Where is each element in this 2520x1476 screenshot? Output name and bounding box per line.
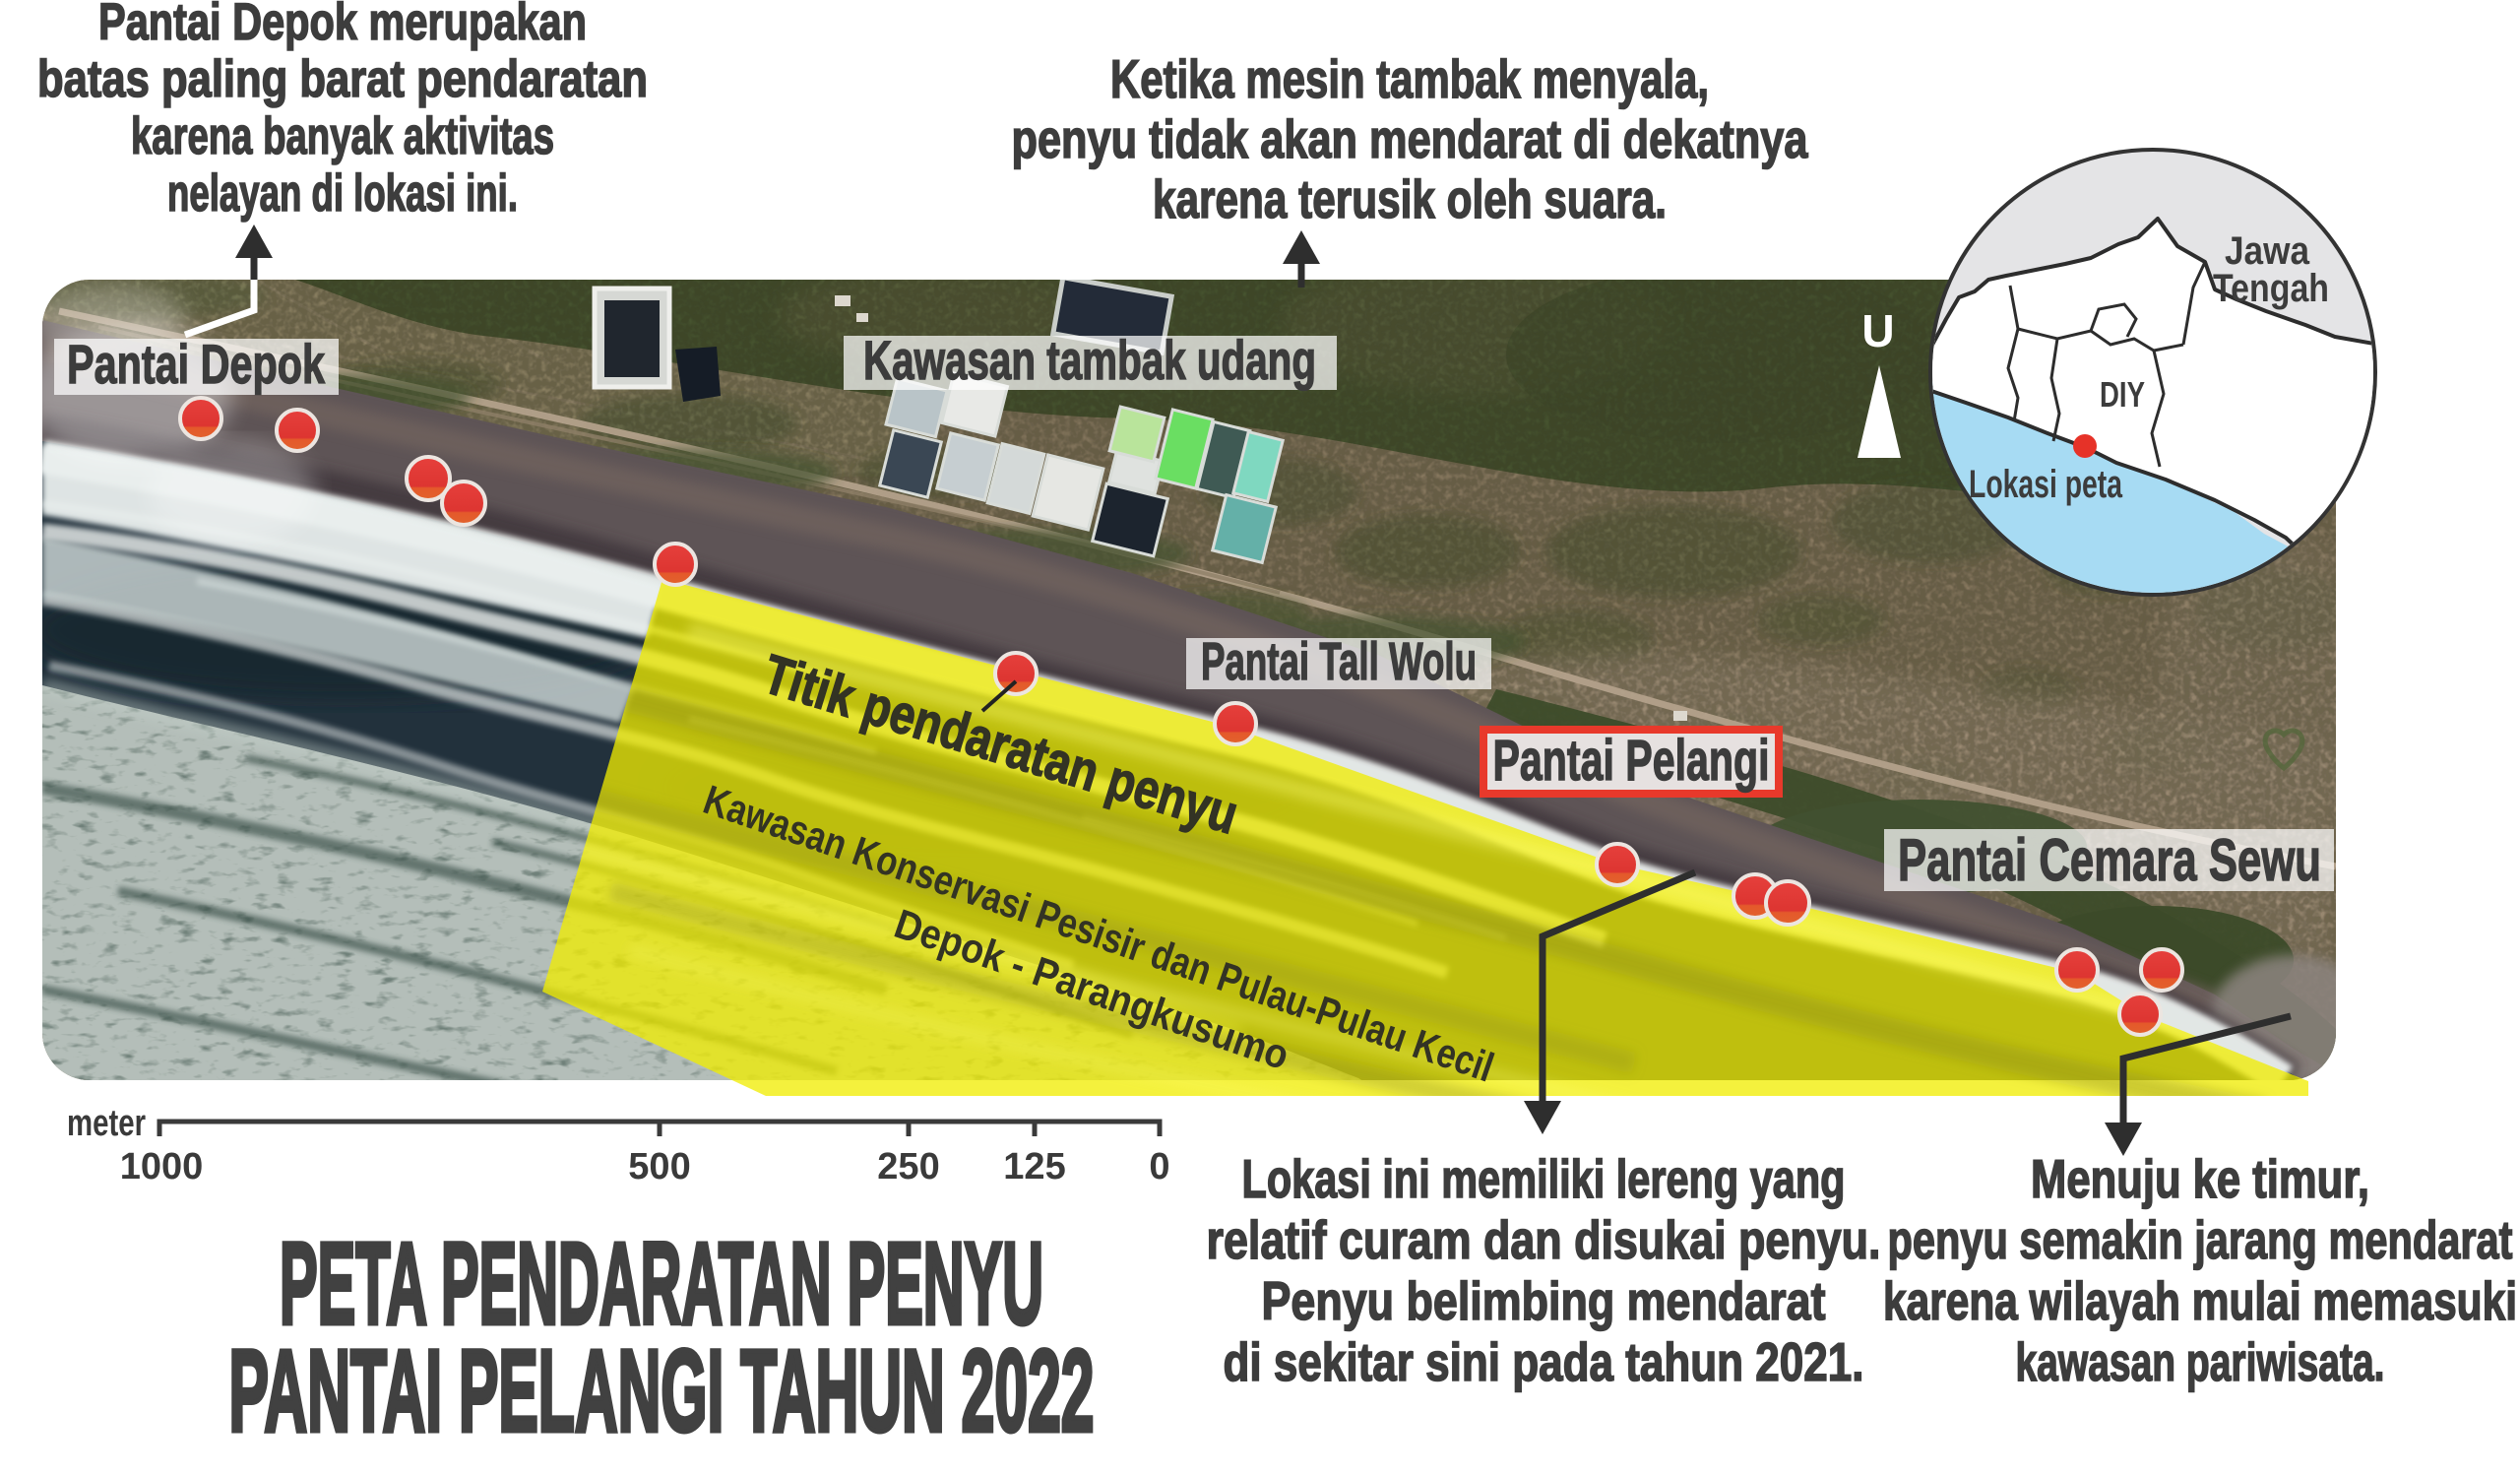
svg-text:batas paling barat pendaratan: batas paling barat pendaratan <box>37 50 648 108</box>
svg-text:PANTAI PELANGI TAHUN 2022: PANTAI PELANGI TAHUN 2022 <box>229 1326 1095 1456</box>
svg-text:Ketika mesin tambak menyala,: Ketika mesin tambak menyala, <box>1110 48 1709 109</box>
svg-text:Tengah: Tengah <box>2213 267 2329 310</box>
svg-text:Menuju ke timur,: Menuju ke timur, <box>2031 1148 2369 1209</box>
svg-text:relatif curam dan disukai peny: relatif curam dan disukai penyu. <box>1207 1209 1881 1270</box>
svg-text:di sekitar sini pada tahun 202: di sekitar sini pada tahun 2021. <box>1224 1331 1864 1392</box>
svg-text:1000: 1000 <box>120 1146 204 1187</box>
svg-text:penyu tidak akan mendarat di d: penyu tidak akan mendarat di dekatnya <box>1012 108 1808 169</box>
svg-text:kawasan pariwisata.: kawasan pariwisata. <box>2016 1331 2385 1392</box>
svg-text:karena wilayah mulai memasuki: karena wilayah mulai memasuki <box>1883 1270 2517 1331</box>
svg-text:Pantai Pelangi: Pantai Pelangi <box>1493 729 1770 793</box>
svg-text:karena terusik oleh suara.: karena terusik oleh suara. <box>1153 168 1667 229</box>
svg-text:Pantai Tall Wolu: Pantai Tall Wolu <box>1201 632 1477 691</box>
svg-text:0: 0 <box>1149 1146 1169 1187</box>
svg-text:nelayan di lokasi ini.: nelayan di lokasi ini. <box>167 164 518 223</box>
svg-text:500: 500 <box>628 1146 690 1187</box>
svg-text:Lokasi ini memiliki lereng yan: Lokasi ini memiliki lereng yang <box>1242 1148 1846 1209</box>
svg-text:250: 250 <box>877 1146 939 1187</box>
svg-text:Pantai Cemara Sewu: Pantai Cemara Sewu <box>1898 827 2321 893</box>
svg-text:Kawasan tambak udang: Kawasan tambak udang <box>863 329 1316 391</box>
svg-text:125: 125 <box>1003 1146 1065 1187</box>
svg-text:Lokasi peta: Lokasi peta <box>1969 463 2123 506</box>
svg-text:karena banyak aktivitas: karena banyak aktivitas <box>131 107 554 165</box>
svg-text:U: U <box>1861 305 1894 356</box>
svg-text:Penyu belimbing mendarat: Penyu belimbing mendarat <box>1262 1270 1826 1331</box>
svg-text:meter: meter <box>67 1103 146 1144</box>
svg-text:Pantai Depok: Pantai Depok <box>67 333 326 395</box>
svg-text:penyu semakin jarang mendarat: penyu semakin jarang mendarat <box>1888 1209 2513 1270</box>
svg-text:Pantai Depok merupakan: Pantai Depok merupakan <box>98 0 587 51</box>
svg-text:DIY: DIY <box>2100 374 2145 415</box>
